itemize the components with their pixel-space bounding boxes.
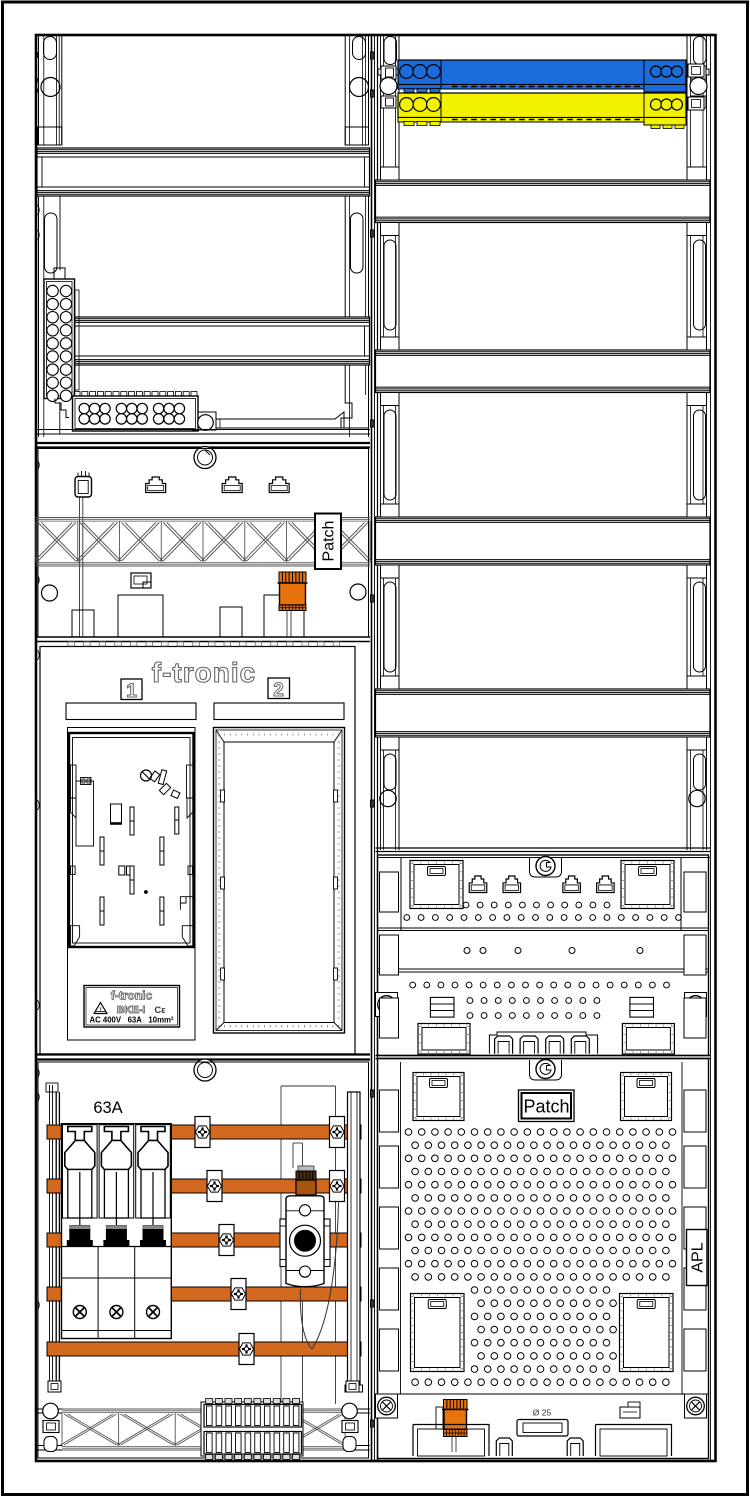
svg-text:63A: 63A	[93, 1099, 122, 1117]
svg-text:2: 2	[273, 680, 284, 701]
svg-text:Cε: Cε	[154, 1005, 166, 1016]
svg-text:Ø 25: Ø 25	[533, 1408, 552, 1418]
svg-text:f-tronic: f-tronic	[111, 989, 153, 1003]
svg-text:f-tronic: f-tronic	[152, 657, 256, 688]
svg-text:APL: APL	[690, 1242, 707, 1272]
svg-text:AC 400V 63A 10mm²: AC 400V 63A 10mm²	[89, 1016, 173, 1025]
svg-text:Patch: Patch	[523, 1097, 569, 1117]
svg-text:Patch: Patch	[321, 521, 338, 562]
svg-text:BKE-I: BKE-I	[117, 1004, 146, 1016]
svg-text:1: 1	[126, 681, 137, 702]
